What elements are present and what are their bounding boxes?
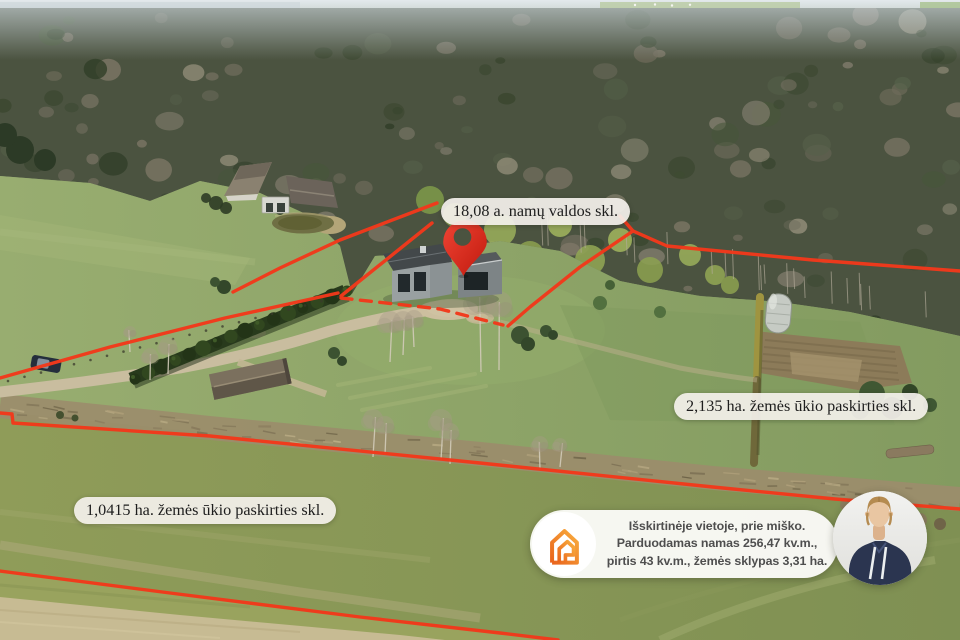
listing-photo: 18,08 a. namų valdos skl. 2,135 ha. žemė… (0, 0, 960, 640)
parcel-label-farmland-large: 2,135 ha. žemės ūkio paskirties skl. (674, 393, 928, 420)
listing-line-3: pirtis 43 kv.m., žemės sklypas 3,31 ha. (600, 553, 834, 570)
agent-photo (833, 491, 927, 585)
agency-logo-badge (532, 512, 596, 576)
parcel-label-farmland-small: 1,0415 ha. žemės ūkio paskirties skl. (74, 497, 336, 524)
listing-description: Išskirtinėje vietoje, prie miško. Parduo… (600, 510, 834, 570)
greenhouse (764, 293, 792, 334)
agent-portrait-illustration (833, 491, 927, 585)
listing-info-card: Išskirtinėje vietoje, prie miško. Parduo… (530, 510, 838, 578)
parcel-label-homestead: 18,08 a. namų valdos skl. (441, 198, 630, 225)
house-logo-icon (543, 523, 585, 565)
location-pin-icon (441, 219, 488, 278)
listing-line-1: Išskirtinėje vietoje, prie miško. (600, 518, 834, 535)
listing-line-2: Parduodamas namas 256,47 kv.m., (600, 535, 834, 552)
